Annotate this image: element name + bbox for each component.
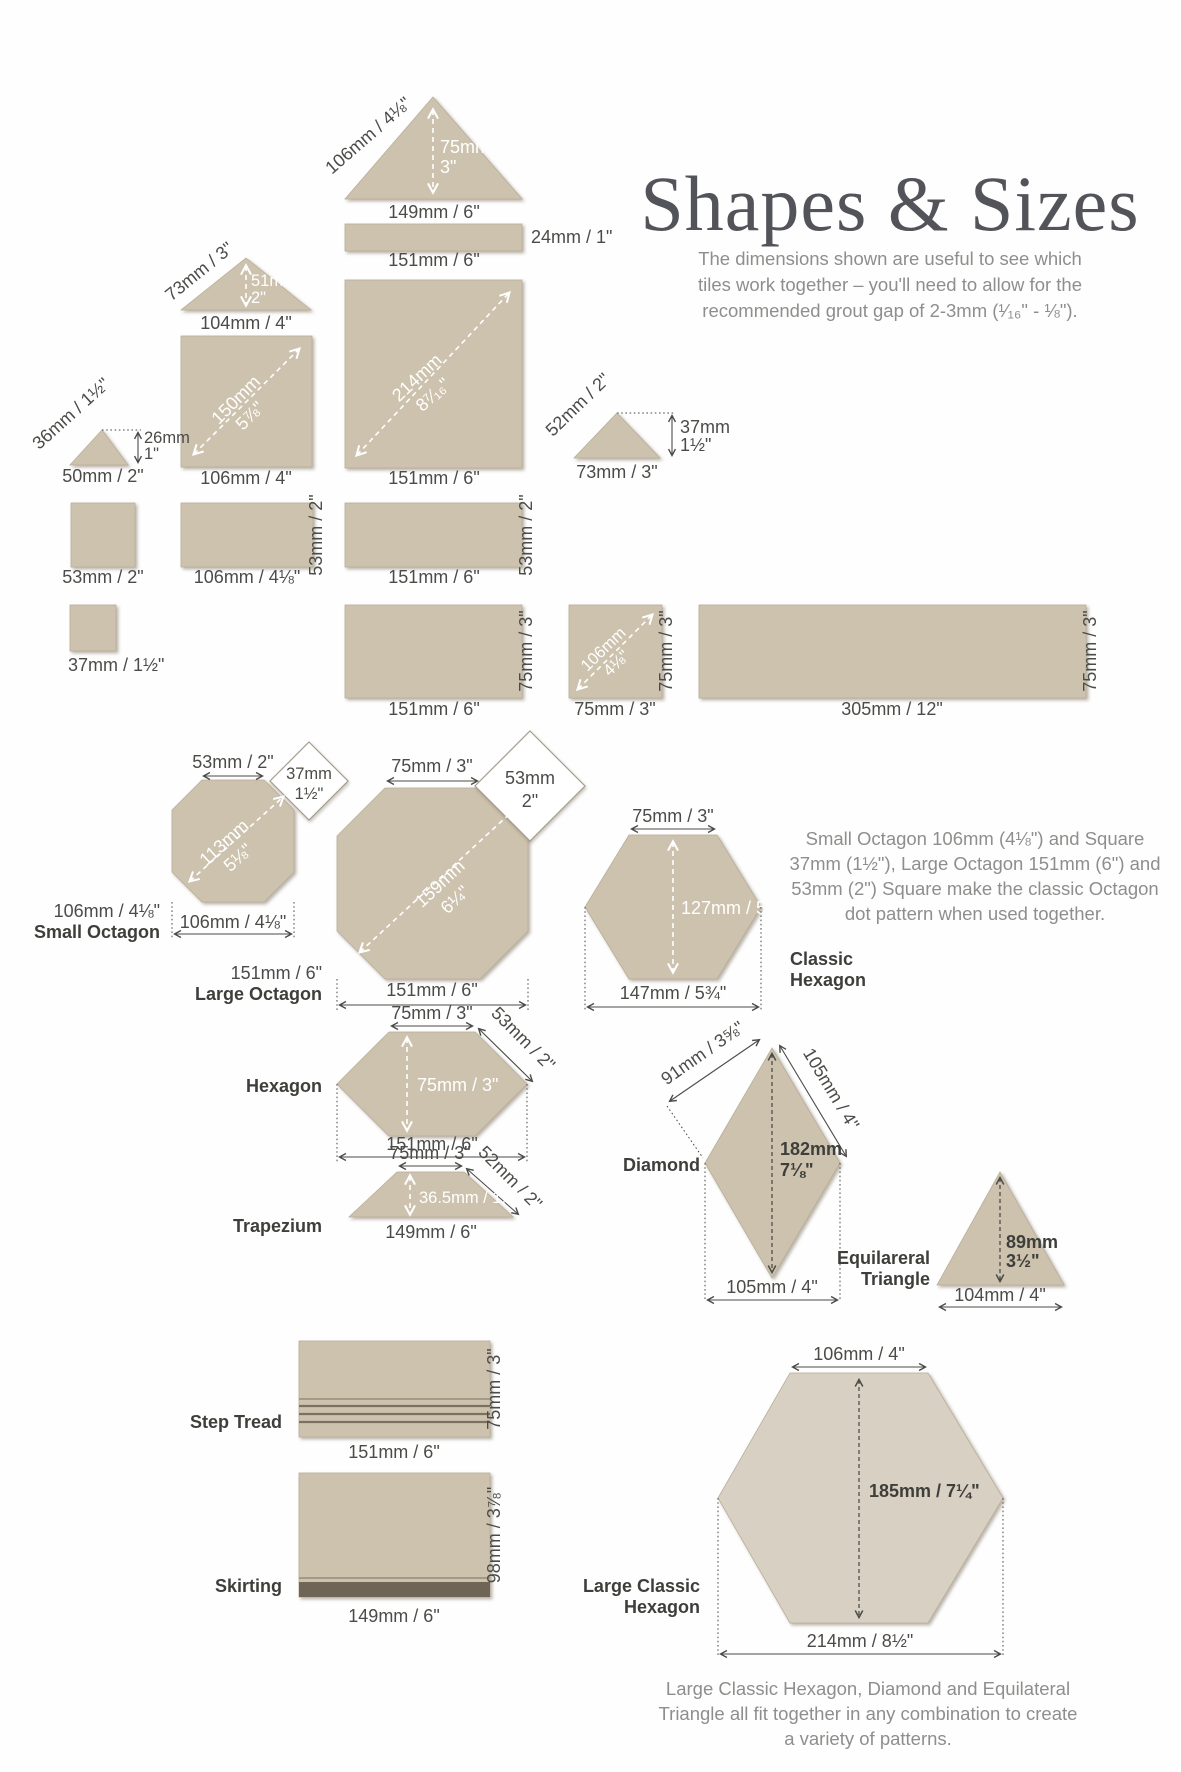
square-37-tile	[70, 605, 116, 651]
rect-305x75-side-label: 75mm / 3"	[1080, 610, 1100, 691]
step-tread-name: Step Tread	[190, 1412, 282, 1432]
page-title: Shapes & Sizes	[640, 160, 1139, 247]
classic-hexagon-height-label: 127mm / 5"	[681, 898, 772, 918]
classic-hexagon-name-2: Hexagon	[790, 970, 866, 990]
square-53-tile	[71, 503, 135, 567]
triangle-73-height-mm: 37mm	[680, 417, 730, 437]
dot-square-37-mm: 37mm	[286, 765, 332, 783]
extension-line	[667, 1106, 703, 1158]
octagon-note-line-3: 53mm (2") Square make the classic Octago…	[791, 878, 1158, 899]
square-106-base-label: 106mm / 4"	[200, 468, 291, 488]
large-hexagon-name-1: Large Classic	[583, 1576, 700, 1596]
rect-106x53-side-label: 53mm / 2"	[306, 494, 326, 575]
equilateral-name-2: Triangle	[861, 1269, 930, 1289]
triangle-73-tile	[574, 413, 660, 458]
square-75-group: 106mm 4⅛" 75mm / 3" 75mm / 3"	[569, 605, 676, 719]
classic-hexagon-name-1: Classic	[790, 949, 853, 969]
shapes-diagram: Shapes & Sizes The dimensions shown are …	[0, 0, 1181, 1772]
skirting-side-label: 98mm / 3⅞"	[484, 1487, 504, 1583]
triangle-73-base-label: 73mm / 3"	[576, 462, 657, 482]
header: Shapes & Sizes The dimensions shown are …	[640, 160, 1139, 321]
square-151-group: 214mm 8⁷⁄₁₆" 151mm / 6"	[345, 280, 522, 488]
rect-305x75-tile	[699, 605, 1086, 698]
square-151-base-label: 151mm / 6"	[388, 468, 479, 488]
diamond-base-label: 105mm / 4"	[726, 1277, 817, 1297]
classic-hexagon-base-label: 147mm / 5¾"	[620, 983, 726, 1003]
large-octagon-name: Large Octagon	[195, 984, 322, 1004]
square-53-group: 53mm / 2"	[62, 503, 143, 587]
small-octagon-top-label: 53mm / 2"	[192, 752, 273, 772]
rect-151x53-group: 53mm / 2" 151mm / 6"	[345, 494, 536, 587]
square-53-base-label: 53mm / 2"	[62, 567, 143, 587]
small-octagon-size-label: 106mm / 4⅛"	[54, 901, 160, 921]
strip-24-tile	[345, 224, 522, 251]
octagon-note-line-4: dot pattern when used together.	[845, 903, 1105, 924]
rect-106x53-tile	[181, 503, 313, 567]
skirting-base-strip	[299, 1582, 490, 1597]
square-37-base-label: 37mm / 1½"	[68, 655, 164, 675]
diamond-height-in: 7⅛"	[780, 1160, 814, 1180]
rect-151x53-base-label: 151mm / 6"	[388, 567, 479, 587]
classic-hexagon-top-label: 75mm / 3"	[632, 806, 713, 826]
dot-square-37-in: 1½"	[295, 785, 324, 803]
large-hexagon-top-label: 106mm / 4"	[813, 1344, 904, 1364]
hexagon-group: 75mm / 3" 53mm / 2" 75mm / 3" Hexagon 15…	[246, 1003, 559, 1162]
small-octagon-base-label: 106mm / 4⅛"	[180, 912, 286, 932]
triangle-73-height-in: 1½"	[680, 435, 711, 455]
rect-151x75-base-label: 151mm / 6"	[388, 699, 479, 719]
triangle-104-height-in: 2"	[251, 289, 266, 307]
skirting-name: Skirting	[215, 1576, 282, 1596]
footer-note: Large Classic Hexagon, Diamond and Equil…	[659, 1678, 1078, 1749]
octagon-note: Small Octagon 106mm (4⅛") and Square 37m…	[790, 828, 1161, 924]
step-tread-side-label: 75mm / 3"	[484, 1348, 504, 1429]
trapezium-group: 75mm / 3" 52mm / 2" 36.5mm / 1.5" Trapez…	[233, 1142, 546, 1242]
equilateral-height-in: 3½"	[1006, 1251, 1040, 1271]
triangle-104-group: 73mm / 3" 51mm 2" 104mm / 4"	[161, 238, 311, 333]
intro-line-2: tiles work together – you'll need to all…	[698, 274, 1082, 295]
square-75-side-label: 75mm / 3"	[656, 610, 676, 691]
rect-305x75-base-label: 305mm / 12"	[841, 699, 942, 719]
rect-151x75-group: 75mm / 3" 151mm / 6"	[345, 605, 536, 719]
intro-line-1: The dimensions shown are useful to see w…	[698, 248, 1082, 269]
equilateral-name-1: Equilareral	[837, 1248, 930, 1268]
large-classic-hexagon-group: 106mm / 4" 185mm / 7¼" 214mm / 8½" Large…	[583, 1344, 1003, 1655]
large-octagon-base-label: 151mm / 6"	[386, 980, 477, 1000]
diamond-name: Diamond	[623, 1155, 700, 1175]
skirting-group: 98mm / 3⅞" Skirting 149mm / 6"	[215, 1473, 504, 1626]
triangle-149-base-label: 149mm / 6"	[388, 202, 479, 222]
equilateral-triangle-group: 89mm 3½" Equilareral Triangle 104mm / 4"	[837, 1172, 1064, 1307]
trapezium-height-label: 36.5mm / 1.5"	[419, 1189, 521, 1207]
large-octagon-size-label: 151mm / 6"	[231, 963, 322, 983]
triangle-149-height-in: 3"	[440, 157, 456, 177]
footer-line-1: Large Classic Hexagon, Diamond and Equil…	[666, 1678, 1070, 1699]
rect-151x53-side-label: 53mm / 2"	[516, 494, 536, 575]
rect-151x75-tile	[345, 605, 522, 698]
dot-square-53-mm: 53mm	[505, 768, 555, 788]
large-hexagon-height-label: 185mm / 7¼"	[869, 1481, 980, 1501]
equilateral-base-label: 104mm / 4"	[954, 1285, 1045, 1305]
step-tread-group: 75mm / 3" Step Tread 151mm / 6"	[190, 1341, 504, 1462]
footer-line-3: a variety of patterns.	[784, 1728, 952, 1749]
triangle-104-base-label: 104mm / 4"	[200, 313, 291, 333]
diamond-height-mm: 182mm	[780, 1139, 842, 1159]
strip-24-side-label: 24mm / 1"	[531, 227, 612, 247]
rect-305x75-group: 75mm / 3" 305mm / 12"	[699, 605, 1100, 719]
triangle-50-base-label: 50mm / 2"	[62, 466, 143, 486]
strip-24-group: 24mm / 1" 151mm / 6"	[345, 224, 612, 270]
rect-106x53-base-label: 106mm / 4⅛"	[194, 567, 300, 587]
trapezium-base-label: 149mm / 6"	[385, 1222, 476, 1242]
strip-24-base-label: 151mm / 6"	[388, 250, 479, 270]
footer-line-2: Triangle all fit together in any combina…	[659, 1703, 1078, 1724]
small-octagon-name: Small Octagon	[34, 922, 160, 942]
hexagon-top-label: 75mm / 3"	[391, 1003, 472, 1023]
triangle-73-group: 52mm / 2" 37mm 1½" 73mm / 3"	[542, 369, 730, 482]
trapezium-top-label: 75mm / 3"	[389, 1143, 470, 1163]
hexagon-name: Hexagon	[246, 1076, 322, 1096]
triangle-50-height-in: 1"	[144, 445, 159, 463]
square-75-base-label: 75mm / 3"	[574, 699, 655, 719]
step-tread-base-label: 151mm / 6"	[348, 1442, 439, 1462]
intro-line-3: recommended grout gap of 2-3mm (¹⁄₁₆" - …	[702, 300, 1077, 321]
rect-151x75-side-label: 75mm / 3"	[516, 610, 536, 691]
triangle-50-tile	[70, 430, 128, 465]
triangle-149-height-mm: 75mm	[440, 137, 490, 157]
shapes-and-sizes-page: Shapes & Sizes The dimensions shown are …	[0, 0, 1181, 1772]
triangle-104-height-mm: 51mm	[251, 272, 297, 290]
skirting-base-label: 149mm / 6"	[348, 1606, 439, 1626]
large-hexagon-base-label: 214mm / 8½"	[807, 1631, 913, 1651]
octagon-note-line-2: 37mm (1½"), Large Octagon 151mm (6") and	[790, 853, 1161, 874]
diamond-group: 91mm / 3⅝" 105mm / 4" 182mm 7⅛" Diamond …	[623, 1017, 863, 1300]
dot-square-53-in: 2"	[522, 791, 538, 811]
large-octagon-top-label: 75mm / 3"	[391, 756, 472, 776]
square-106-group: 150mm 5⅞" 106mm / 4"	[181, 336, 312, 488]
trapezium-name: Trapezium	[233, 1216, 322, 1236]
triangle-149-group: 106mm / 4⅛" 75mm 3" 149mm / 6"	[321, 93, 522, 222]
equilateral-height-mm: 89mm	[1006, 1232, 1058, 1252]
octagon-note-line-1: Small Octagon 106mm (4⅛") and Square	[806, 828, 1145, 849]
large-hexagon-name-2: Hexagon	[624, 1597, 700, 1617]
hexagon-height-label: 75mm / 3"	[417, 1075, 498, 1095]
rect-151x53-tile	[345, 503, 522, 567]
square-37-group: 37mm / 1½"	[68, 605, 164, 675]
small-octagon-group: 53mm / 2" 37mm 1½" 113mm 5⅛" 106mm / 4⅛"…	[34, 742, 348, 942]
rect-106x53-group: 53mm / 2" 106mm / 4⅛"	[181, 494, 326, 587]
triangle-50-group: 36mm / 1½" 26mm 1" 50mm / 2"	[28, 374, 189, 486]
